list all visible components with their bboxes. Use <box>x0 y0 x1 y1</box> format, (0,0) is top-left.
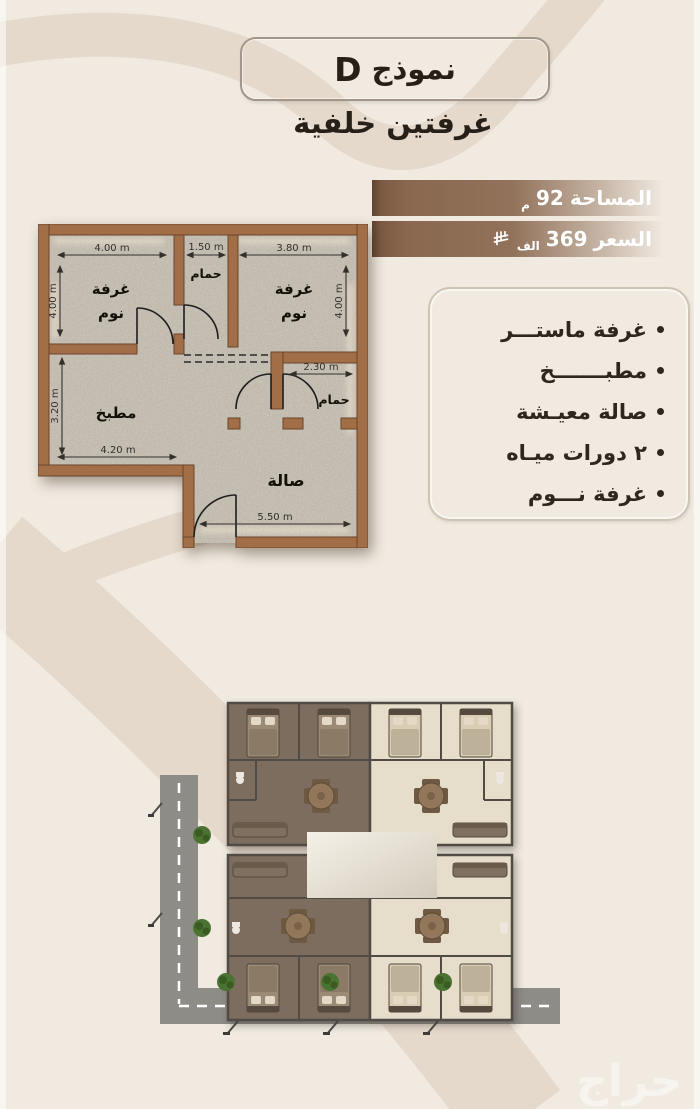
toilet <box>232 922 240 934</box>
room-label-bedroom-left: نوم <box>98 304 124 322</box>
street-lamp-icon <box>148 803 162 817</box>
dimension-label: 4.00 m <box>48 283 59 318</box>
courtyard <box>307 832 437 898</box>
room-label-bedroom-right: نوم <box>281 304 307 322</box>
sofa <box>453 823 507 837</box>
feature-item: غرفة نـــوم <box>438 473 664 514</box>
features-card: غرفة ماستـــر مطبـــــــخ صالة معيـشة ٢ … <box>428 287 690 521</box>
model-title-box: نموذج D <box>240 37 550 101</box>
area-unit: م <box>521 198 530 212</box>
street-lamp-icon <box>148 913 162 927</box>
price-unit: الف <box>517 239 540 253</box>
area-value: 92 <box>536 186 564 210</box>
feature-item: غرفة ماستـــر <box>438 309 664 350</box>
dimension-label: 1.50 m <box>188 242 223 253</box>
area-badge: المساحة 92 م <box>372 180 664 216</box>
site-3d-render <box>148 688 568 1048</box>
bed <box>318 709 350 757</box>
dimension-label: 4.00 m <box>94 243 129 254</box>
right-edge-strip <box>694 0 700 1109</box>
subtitle: غرفتين خلفية <box>240 106 546 140</box>
bush-icon <box>217 973 235 991</box>
room-label-bathroom-hall: حمام <box>318 392 349 408</box>
bed <box>247 964 279 1012</box>
bed <box>389 709 421 757</box>
building-upper-block <box>228 703 512 845</box>
room-label-bedroom-right: غرفة <box>275 280 314 298</box>
feature-item: صالة معيـشة <box>438 391 664 432</box>
toilet <box>236 772 244 784</box>
room-label-bedroom-left: غرفة <box>92 280 131 298</box>
left-edge-strip <box>0 0 6 1109</box>
toilet <box>496 772 504 784</box>
haraj-watermark: حراج <box>576 1056 682 1107</box>
bush-icon <box>434 973 452 991</box>
dimension-label: 4.00 m <box>334 283 345 318</box>
saudi-riyal-icon <box>493 231 509 247</box>
room-label-kitchen: مطبخ <box>96 404 137 422</box>
bush-icon <box>321 973 339 991</box>
bush-icon <box>193 826 211 844</box>
features-list: غرفة ماستـــر مطبـــــــخ صالة معيـشة ٢ … <box>430 309 688 514</box>
dimension-label: 3.80 m <box>276 243 311 254</box>
room-label-bathroom-top: حمام <box>190 266 221 282</box>
sofa <box>453 863 507 877</box>
sofa <box>233 863 287 877</box>
price-label: السعر <box>594 227 652 251</box>
bed <box>389 964 421 1012</box>
model-label: نموذج <box>372 52 456 86</box>
dimension-label: 4.20 m <box>100 445 135 456</box>
real-estate-flyer: نموذج D غرفتين خلفية المساحة 92 م السعر … <box>0 0 700 1109</box>
bed <box>460 709 492 757</box>
feature-item: ٢ دورات ميـاه <box>438 432 664 473</box>
dimension-label: 2.30 m <box>303 362 338 373</box>
price-value: 369 <box>546 227 588 251</box>
bed <box>460 964 492 1012</box>
bed <box>247 709 279 757</box>
price-badge: السعر 369 الف <box>372 221 664 257</box>
dimension-label: 5.50 m <box>257 512 292 523</box>
dimension-label: 3.20 m <box>50 388 61 423</box>
room-label-hall: صالة <box>267 471 304 490</box>
feature-item: مطبـــــــخ <box>438 350 664 391</box>
toilet <box>500 922 508 934</box>
bush-icon <box>193 919 211 937</box>
model-letter: D <box>334 50 361 89</box>
floor-plan: 4.00 m 1.50 m 3.80 m 4.00 m 4.00 m 3.20 … <box>38 224 368 548</box>
sofa <box>233 823 287 837</box>
area-label: المساحة <box>570 186 652 210</box>
